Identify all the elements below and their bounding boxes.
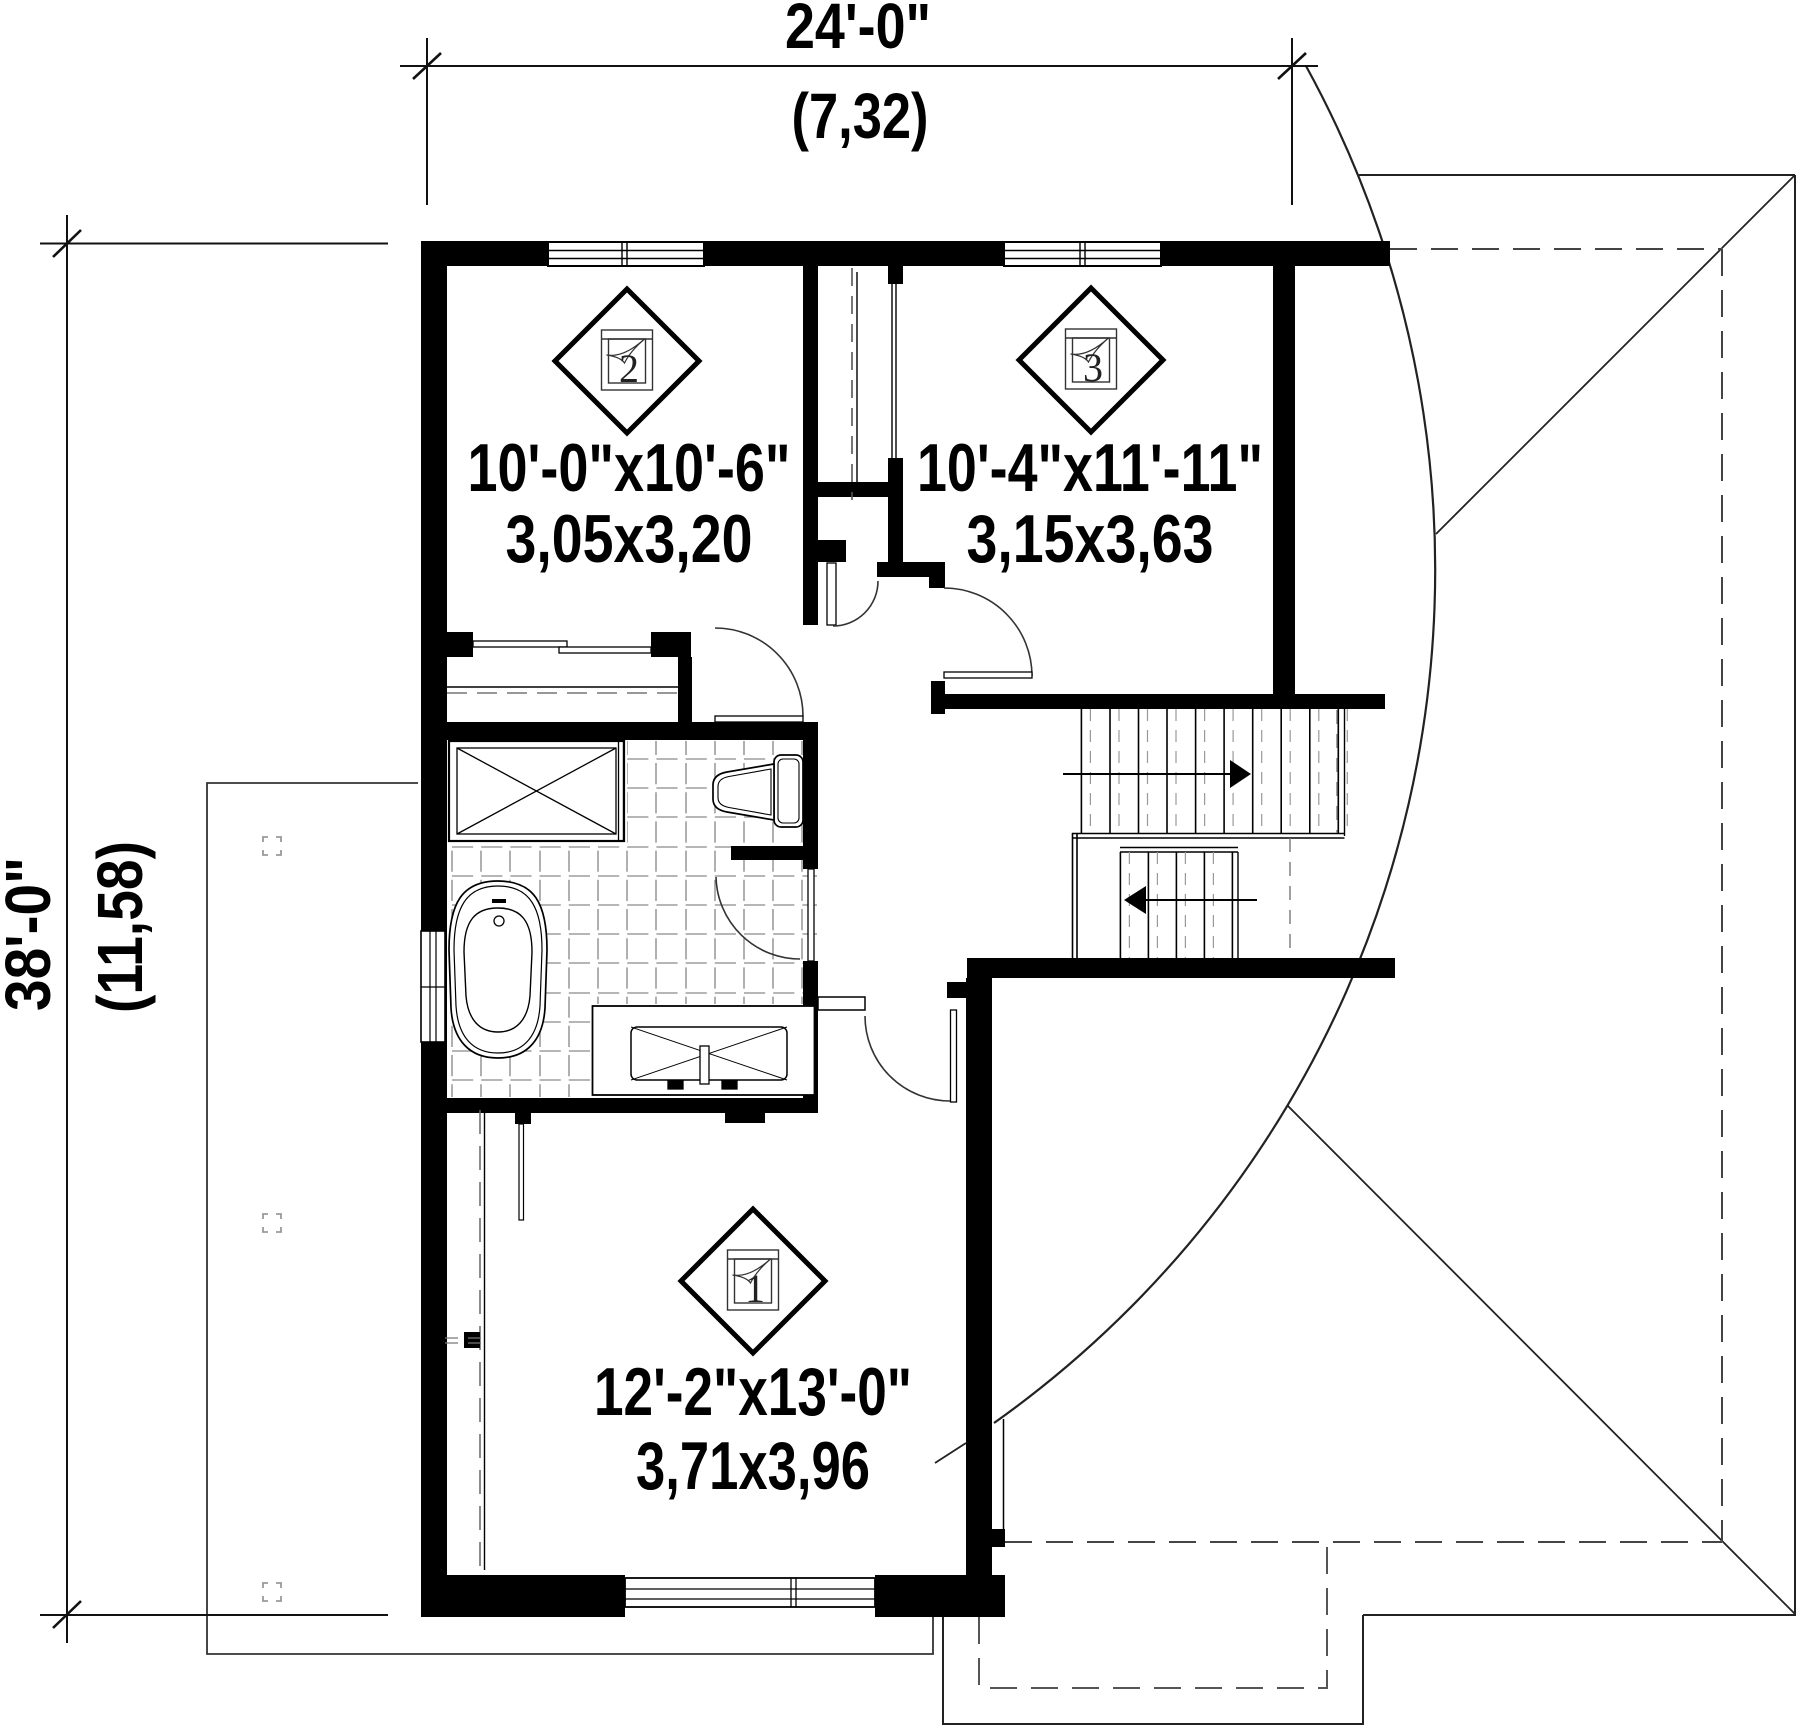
svg-text:(11,58): (11,58)	[84, 841, 156, 1013]
svg-text:24'-0": 24'-0"	[785, 0, 931, 62]
svg-text:3,05x3,20: 3,05x3,20	[506, 501, 753, 577]
svg-text:2: 2	[619, 346, 639, 391]
svg-text:3,71x3,96: 3,71x3,96	[636, 1428, 870, 1504]
svg-text:(7,32): (7,32)	[792, 80, 929, 152]
svg-text:10'-0"x10'-6": 10'-0"x10'-6"	[468, 430, 791, 506]
svg-text:38'-0": 38'-0"	[0, 857, 64, 1011]
svg-text:10'-4"x11'-11": 10'-4"x11'-11"	[917, 430, 1263, 506]
svg-text:1: 1	[745, 1266, 765, 1311]
svg-text:3: 3	[1083, 345, 1103, 390]
svg-text:12'-2"x13'-0": 12'-2"x13'-0"	[594, 1354, 912, 1430]
svg-text:3,15x3,63: 3,15x3,63	[967, 501, 1214, 577]
